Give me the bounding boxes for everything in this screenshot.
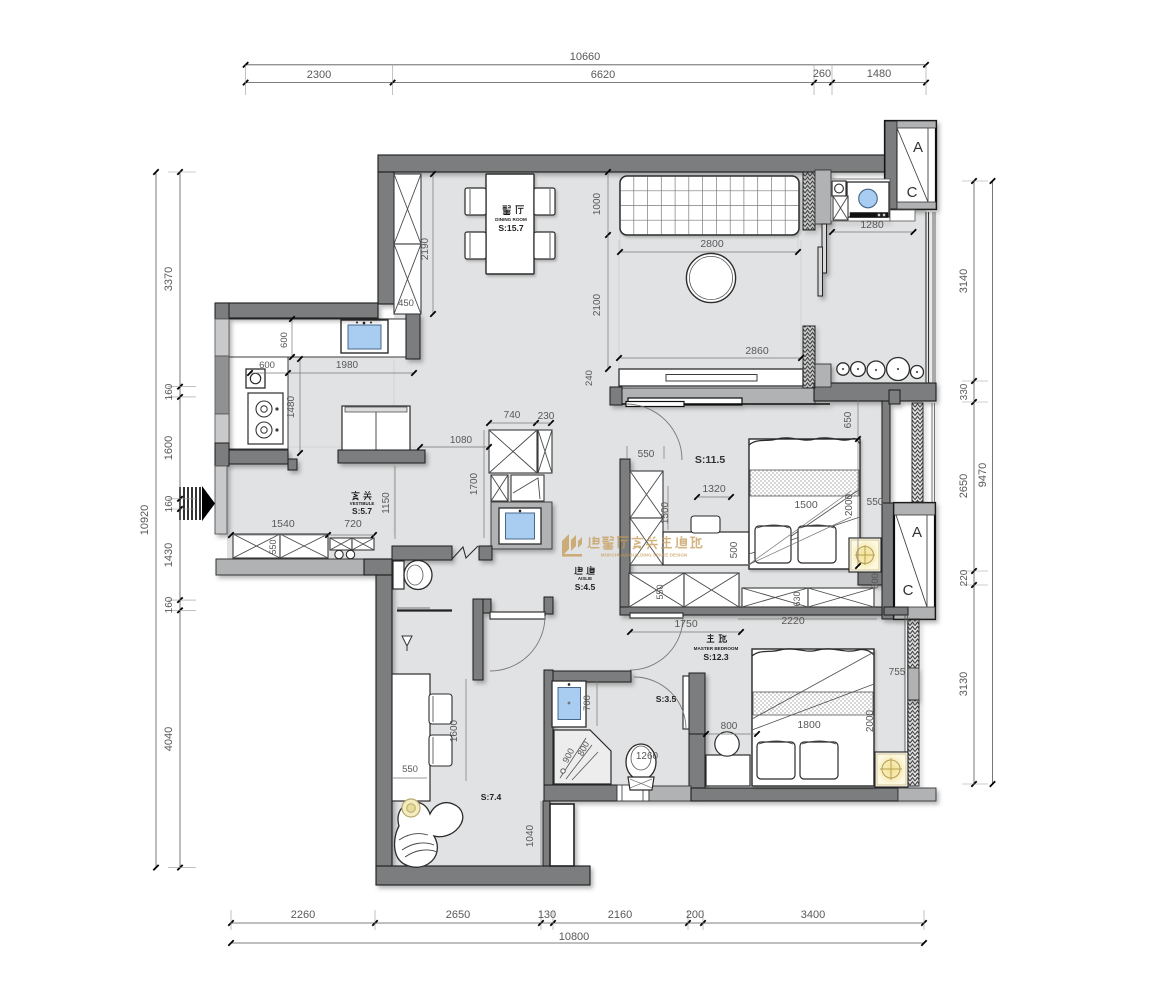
svg-text:1600: 1600 bbox=[163, 436, 175, 460]
svg-text:1800: 1800 bbox=[797, 719, 821, 731]
svg-text:10660: 10660 bbox=[570, 51, 601, 63]
svg-text:160: 160 bbox=[164, 596, 175, 613]
svg-text:260: 260 bbox=[813, 68, 831, 80]
svg-text:500: 500 bbox=[729, 541, 740, 558]
svg-text:1000: 1000 bbox=[592, 192, 603, 215]
svg-text:S:11.5: S:11.5 bbox=[695, 454, 726, 466]
svg-text:800: 800 bbox=[721, 721, 738, 732]
svg-text:S:12.3: S:12.3 bbox=[703, 652, 729, 662]
svg-text:AISLIE: AISLIE bbox=[578, 576, 592, 581]
svg-text:240: 240 bbox=[584, 370, 595, 386]
svg-text:550: 550 bbox=[402, 764, 418, 775]
svg-text:1600: 1600 bbox=[449, 719, 460, 742]
svg-text:550: 550 bbox=[268, 539, 278, 554]
svg-text:1700: 1700 bbox=[469, 472, 480, 495]
svg-text:1540: 1540 bbox=[271, 518, 295, 530]
svg-text:10800: 10800 bbox=[559, 931, 590, 943]
svg-text:1750: 1750 bbox=[674, 618, 698, 630]
svg-text:S:3.5: S:3.5 bbox=[656, 694, 677, 704]
svg-text:755: 755 bbox=[889, 667, 906, 678]
svg-text:2650: 2650 bbox=[446, 909, 470, 921]
svg-text:S:4.5: S:4.5 bbox=[575, 582, 596, 592]
svg-text:10920: 10920 bbox=[139, 505, 151, 536]
svg-text:1500: 1500 bbox=[794, 499, 818, 511]
svg-text:2300: 2300 bbox=[307, 69, 331, 81]
svg-text:2220: 2220 bbox=[781, 615, 805, 627]
svg-text:230: 230 bbox=[538, 411, 555, 422]
svg-text:1040: 1040 bbox=[525, 824, 536, 847]
svg-text:6620: 6620 bbox=[591, 69, 615, 81]
svg-text:A: A bbox=[912, 524, 922, 541]
svg-text:550: 550 bbox=[867, 497, 884, 508]
svg-text:600: 600 bbox=[870, 573, 881, 589]
svg-text:MOKCHUAN BUILDING SPACE DESIGN: MOKCHUAN BUILDING SPACE DESIGN bbox=[601, 553, 688, 558]
svg-text:160: 160 bbox=[164, 495, 175, 512]
svg-text:2860: 2860 bbox=[745, 345, 769, 357]
svg-text:600: 600 bbox=[259, 360, 275, 371]
svg-text:1150: 1150 bbox=[381, 492, 392, 514]
svg-text:1480: 1480 bbox=[867, 68, 891, 80]
svg-text:2000: 2000 bbox=[844, 493, 855, 516]
svg-text:1500: 1500 bbox=[660, 501, 671, 524]
svg-text:330: 330 bbox=[959, 383, 970, 400]
svg-text:3400: 3400 bbox=[801, 909, 825, 921]
svg-text:2100: 2100 bbox=[592, 293, 603, 316]
svg-text:450: 450 bbox=[398, 298, 414, 309]
svg-text:2000: 2000 bbox=[865, 709, 876, 732]
svg-text:200: 200 bbox=[686, 909, 704, 921]
svg-text:2190: 2190 bbox=[420, 237, 431, 260]
svg-text:700: 700 bbox=[582, 695, 593, 711]
svg-text:C: C bbox=[907, 184, 918, 201]
svg-text:2650: 2650 bbox=[958, 474, 970, 498]
svg-text:3130: 3130 bbox=[958, 672, 970, 696]
svg-text:4040: 4040 bbox=[163, 727, 175, 751]
svg-text:S:5.7: S:5.7 bbox=[352, 506, 372, 516]
svg-text:MASTER BEDROOM: MASTER BEDROOM bbox=[694, 646, 739, 651]
svg-text:1430: 1430 bbox=[163, 543, 175, 567]
svg-text:1260: 1260 bbox=[636, 751, 659, 762]
svg-text:9470: 9470 bbox=[977, 463, 989, 487]
svg-text:1280: 1280 bbox=[860, 219, 884, 231]
svg-text:550: 550 bbox=[655, 584, 665, 599]
svg-text:630: 630 bbox=[792, 591, 802, 606]
svg-text:1980: 1980 bbox=[336, 360, 359, 371]
svg-text:1480: 1480 bbox=[286, 395, 297, 418]
svg-text:1080: 1080 bbox=[450, 435, 473, 446]
svg-text:2160: 2160 bbox=[608, 909, 632, 921]
svg-text:C: C bbox=[903, 582, 914, 599]
svg-text:720: 720 bbox=[344, 518, 362, 530]
svg-text:130: 130 bbox=[538, 909, 556, 921]
svg-text:S:7.4: S:7.4 bbox=[481, 792, 502, 802]
svg-text:160: 160 bbox=[164, 383, 175, 400]
svg-text:3140: 3140 bbox=[958, 269, 970, 293]
svg-text:2260: 2260 bbox=[291, 909, 315, 921]
svg-text:3370: 3370 bbox=[163, 267, 175, 291]
svg-text:A: A bbox=[913, 139, 923, 156]
svg-text:DINING ROOM: DINING ROOM bbox=[495, 217, 527, 222]
svg-text:1320: 1320 bbox=[702, 483, 726, 495]
svg-text:600: 600 bbox=[279, 332, 290, 348]
svg-text:550: 550 bbox=[638, 449, 655, 460]
svg-text:2800: 2800 bbox=[700, 238, 724, 250]
svg-text:650: 650 bbox=[843, 411, 854, 428]
svg-text:S:15.7: S:15.7 bbox=[498, 223, 524, 233]
svg-text:740: 740 bbox=[504, 410, 521, 421]
svg-text:220: 220 bbox=[959, 569, 970, 586]
